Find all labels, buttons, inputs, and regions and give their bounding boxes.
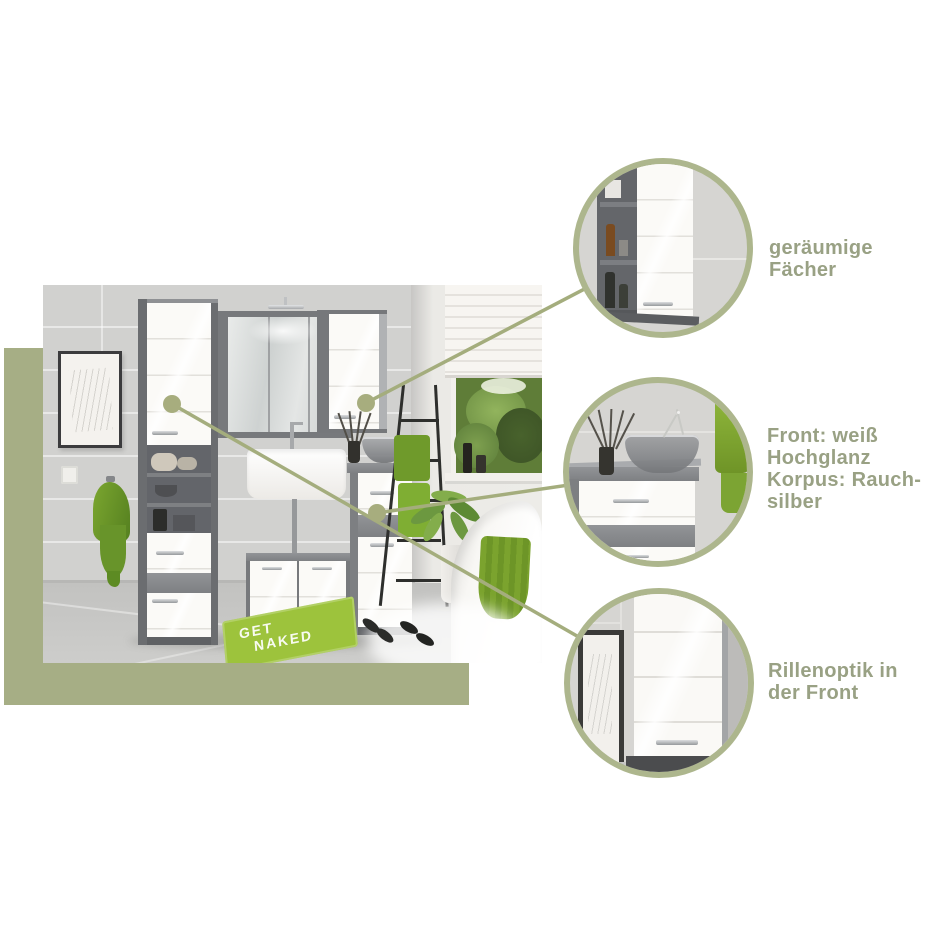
detail-diffuser-stick [609,409,612,449]
product-annotation-graphic: GET NAKED [0,0,940,940]
detail-shelf-bottle-dark [605,272,615,308]
detail-diffuser-jar [599,447,614,475]
callout-dot-spacious-shelves [357,394,375,412]
detail-shelf-board [600,202,637,207]
callout-label-groove-front: Rillenoptik in der Front [768,660,940,704]
detail-drawer-upper-handle [613,499,649,503]
detail-green-towel [715,397,749,473]
detail-floor-hint [570,762,626,772]
label-line: geräumige [769,237,929,259]
callout-circle-spacious-shelves [573,158,753,338]
label-line: Front: weiß [767,425,939,447]
detail-groove-door-handle [656,740,698,745]
label-line: Rillenoptik in [768,660,940,682]
callout-dot-groove-front [163,395,181,413]
detail-glossy-door [637,164,693,316]
detail-under-door-gap [626,756,728,772]
detail-shelf-bottle-dark [619,284,628,308]
detail-shelf-board [600,260,637,265]
detail-drawer-upper [579,481,695,525]
detail-shelf-jar [619,240,628,256]
detail-wall-right [728,594,748,772]
label-line: der Front [768,682,940,704]
callout-dot-front-finish [368,504,386,522]
detail-flower-blossoms [677,411,680,414]
detail-groove-band [579,525,695,547]
detail-groove-door [634,588,722,756]
detail-wall-grout-h [570,622,620,624]
label-line: Fächer [769,259,929,281]
detail-shelf-bottle-amber [606,224,615,256]
detail-green-towel-fold [721,473,749,513]
callout-circle-groove-front [564,588,754,778]
detail-drawer-lower-handle [613,555,649,558]
detail-cabinet-carcass [597,168,637,318]
callout-label-front-finish: Front: weiß Hochglanz Korpus: Rauch- sil… [767,425,939,513]
label-line: Korpus: Rauch- [767,469,939,491]
detail-door-handle [643,302,673,306]
callout-circle-front-finish [563,377,753,567]
label-line: Hochglanz [767,447,939,469]
detail-shelf-box [605,180,621,198]
detail-picture-art [588,654,612,734]
label-line: silber [767,491,939,513]
callout-label-spacious-shelves: geräumige Fächer [769,237,929,281]
